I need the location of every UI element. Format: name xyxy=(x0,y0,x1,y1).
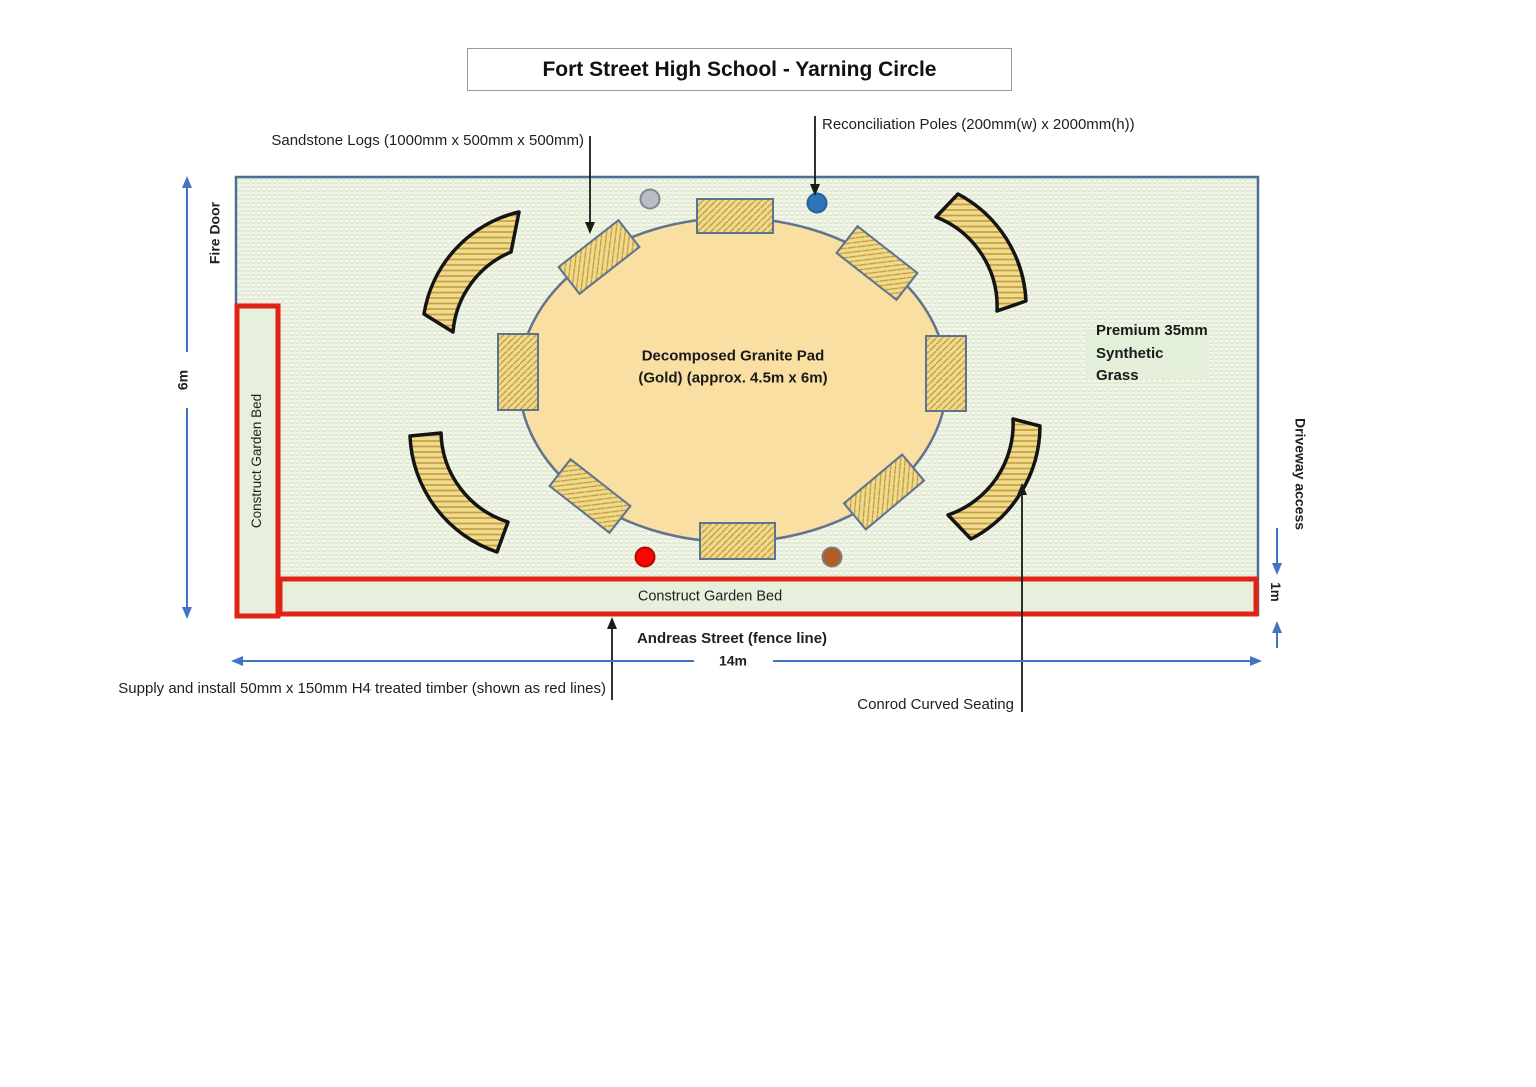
sandstone-log-bottom xyxy=(700,523,775,559)
curved-seating-label: Conrod Curved Seating xyxy=(857,696,1014,714)
sandstone-logs-label: Sandstone Logs (1000mm x 500mm x 500mm) xyxy=(271,132,584,150)
synthetic-grass-label: Premium 35mm Synthetic Grass xyxy=(1085,329,1209,379)
garden-bed-bottom-label: Construct Garden Bed xyxy=(638,588,782,605)
fire-door-label: Fire Door xyxy=(207,202,224,264)
granite-pad-label-line1: Decomposed Granite Pad xyxy=(638,345,827,367)
arrowhead-14m-right xyxy=(1250,656,1262,666)
yarning-circle-plan: Fort Street High School - Yarning Circle… xyxy=(0,0,1536,1087)
site-plan-drawing xyxy=(0,0,1536,1087)
garden-bed-left-label: Construct Garden Bed xyxy=(249,394,265,528)
sandstone-log-left xyxy=(498,334,538,410)
pole-dot-brown xyxy=(823,548,842,567)
pole-dot-grey xyxy=(641,190,660,209)
arrowhead-1m-up xyxy=(1272,621,1282,633)
arrowhead-6m-bottom xyxy=(182,607,192,619)
synthetic-grass-label-line1: Premium 35mm xyxy=(1096,320,1209,343)
arrowhead-1m-down xyxy=(1272,563,1282,575)
title-box: Fort Street High School - Yarning Circle xyxy=(467,48,1012,91)
synthetic-grass-label-line2: Synthetic Grass xyxy=(1096,343,1209,388)
page-title: Fort Street High School - Yarning Circle xyxy=(542,58,936,82)
granite-pad-label: Decomposed Granite Pad (Gold) (approx. 4… xyxy=(638,345,827,389)
arrowhead-timber xyxy=(607,617,617,629)
arrowhead-6m-top xyxy=(182,176,192,188)
timber-note-label: Supply and install 50mm x 150mm H4 treat… xyxy=(118,680,606,698)
reconciliation-poles-label: Reconciliation Poles (200mm(w) x 2000mm(… xyxy=(822,116,1135,134)
andreas-street-label: Andreas Street (fence line) xyxy=(637,630,827,648)
dim-1m-label: 1m xyxy=(1267,582,1283,602)
pole-dot-red xyxy=(636,548,655,567)
sandstone-log-right xyxy=(926,336,966,411)
sandstone-log-top xyxy=(697,199,773,233)
driveway-access-label: Driveway access xyxy=(1292,418,1309,530)
granite-pad-label-line2: (Gold) (approx. 4.5m x 6m) xyxy=(638,367,827,389)
pole-dot-blue xyxy=(808,194,827,213)
arrowhead-14m-left xyxy=(231,656,243,666)
dim-14m-label: 14m xyxy=(719,653,747,670)
dim-6m-label: 6m xyxy=(175,370,192,390)
